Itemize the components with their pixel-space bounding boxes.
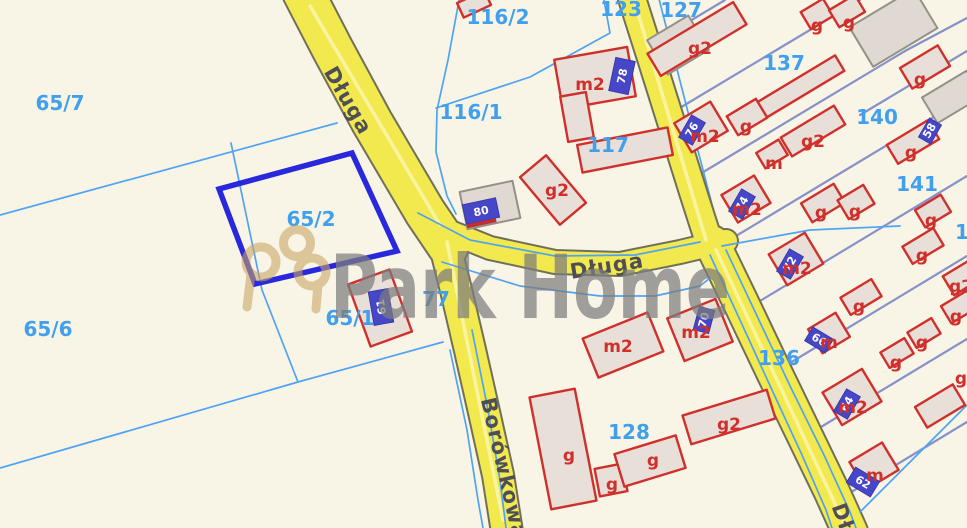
building-label: g2 bbox=[688, 39, 712, 59]
watermark-text: Park Home bbox=[330, 236, 730, 339]
building-label: g bbox=[925, 211, 937, 231]
parcel-label: 140 bbox=[856, 105, 898, 129]
building-label: m2 bbox=[575, 75, 605, 95]
building-label: g bbox=[849, 202, 861, 222]
building-label: g bbox=[647, 451, 659, 471]
building-label: g bbox=[740, 117, 752, 137]
building-label: g bbox=[606, 475, 618, 495]
building-label: g bbox=[950, 307, 962, 327]
building-label: g bbox=[916, 333, 928, 353]
building-label: g bbox=[914, 70, 926, 90]
building-label: g2 bbox=[717, 415, 741, 435]
building-label: m bbox=[866, 466, 884, 486]
parcel-label: 123 bbox=[600, 0, 642, 21]
parcel-label: 127 bbox=[660, 0, 702, 22]
building-label: g2 bbox=[949, 277, 967, 297]
building-label: m bbox=[765, 154, 783, 174]
building-label: m2 bbox=[838, 398, 868, 418]
building-label: g2 bbox=[545, 181, 569, 201]
parcel-label: 128 bbox=[608, 420, 650, 444]
building-label: m2 bbox=[603, 337, 633, 357]
parcel-label: 137 bbox=[763, 51, 805, 75]
parcel-label: 116/1 bbox=[440, 100, 503, 124]
building-label: g bbox=[905, 143, 917, 163]
building-label: g bbox=[916, 246, 928, 266]
building-label: m2 bbox=[732, 200, 762, 220]
parcel-label: 117 bbox=[587, 133, 629, 157]
parcel-label: 136 bbox=[758, 346, 800, 370]
parcel-label: 65/6 bbox=[23, 317, 72, 341]
building-label: g2 bbox=[801, 132, 825, 152]
building-label: g bbox=[811, 16, 823, 36]
building-label: m2 bbox=[782, 259, 812, 279]
building-label: g bbox=[563, 446, 575, 466]
building-label: m bbox=[820, 333, 838, 353]
parcel-label: 141 bbox=[896, 172, 938, 196]
logo-stem bbox=[247, 274, 251, 307]
building-label: g bbox=[815, 203, 827, 223]
building-label: g bbox=[955, 369, 967, 389]
building-label: g bbox=[843, 13, 855, 33]
parcel-label: 1 bbox=[955, 220, 967, 244]
logo-stem bbox=[316, 284, 318, 309]
building-label: g bbox=[890, 353, 902, 373]
parcel-label: 65/7 bbox=[35, 91, 84, 115]
map-canvas[interactable]: 80 78 61 76 74 72 70 66 bbox=[0, 0, 967, 528]
parcel-label: 116/2 bbox=[467, 5, 530, 29]
building-label: g bbox=[853, 297, 865, 317]
building-label: m2 bbox=[690, 127, 720, 147]
